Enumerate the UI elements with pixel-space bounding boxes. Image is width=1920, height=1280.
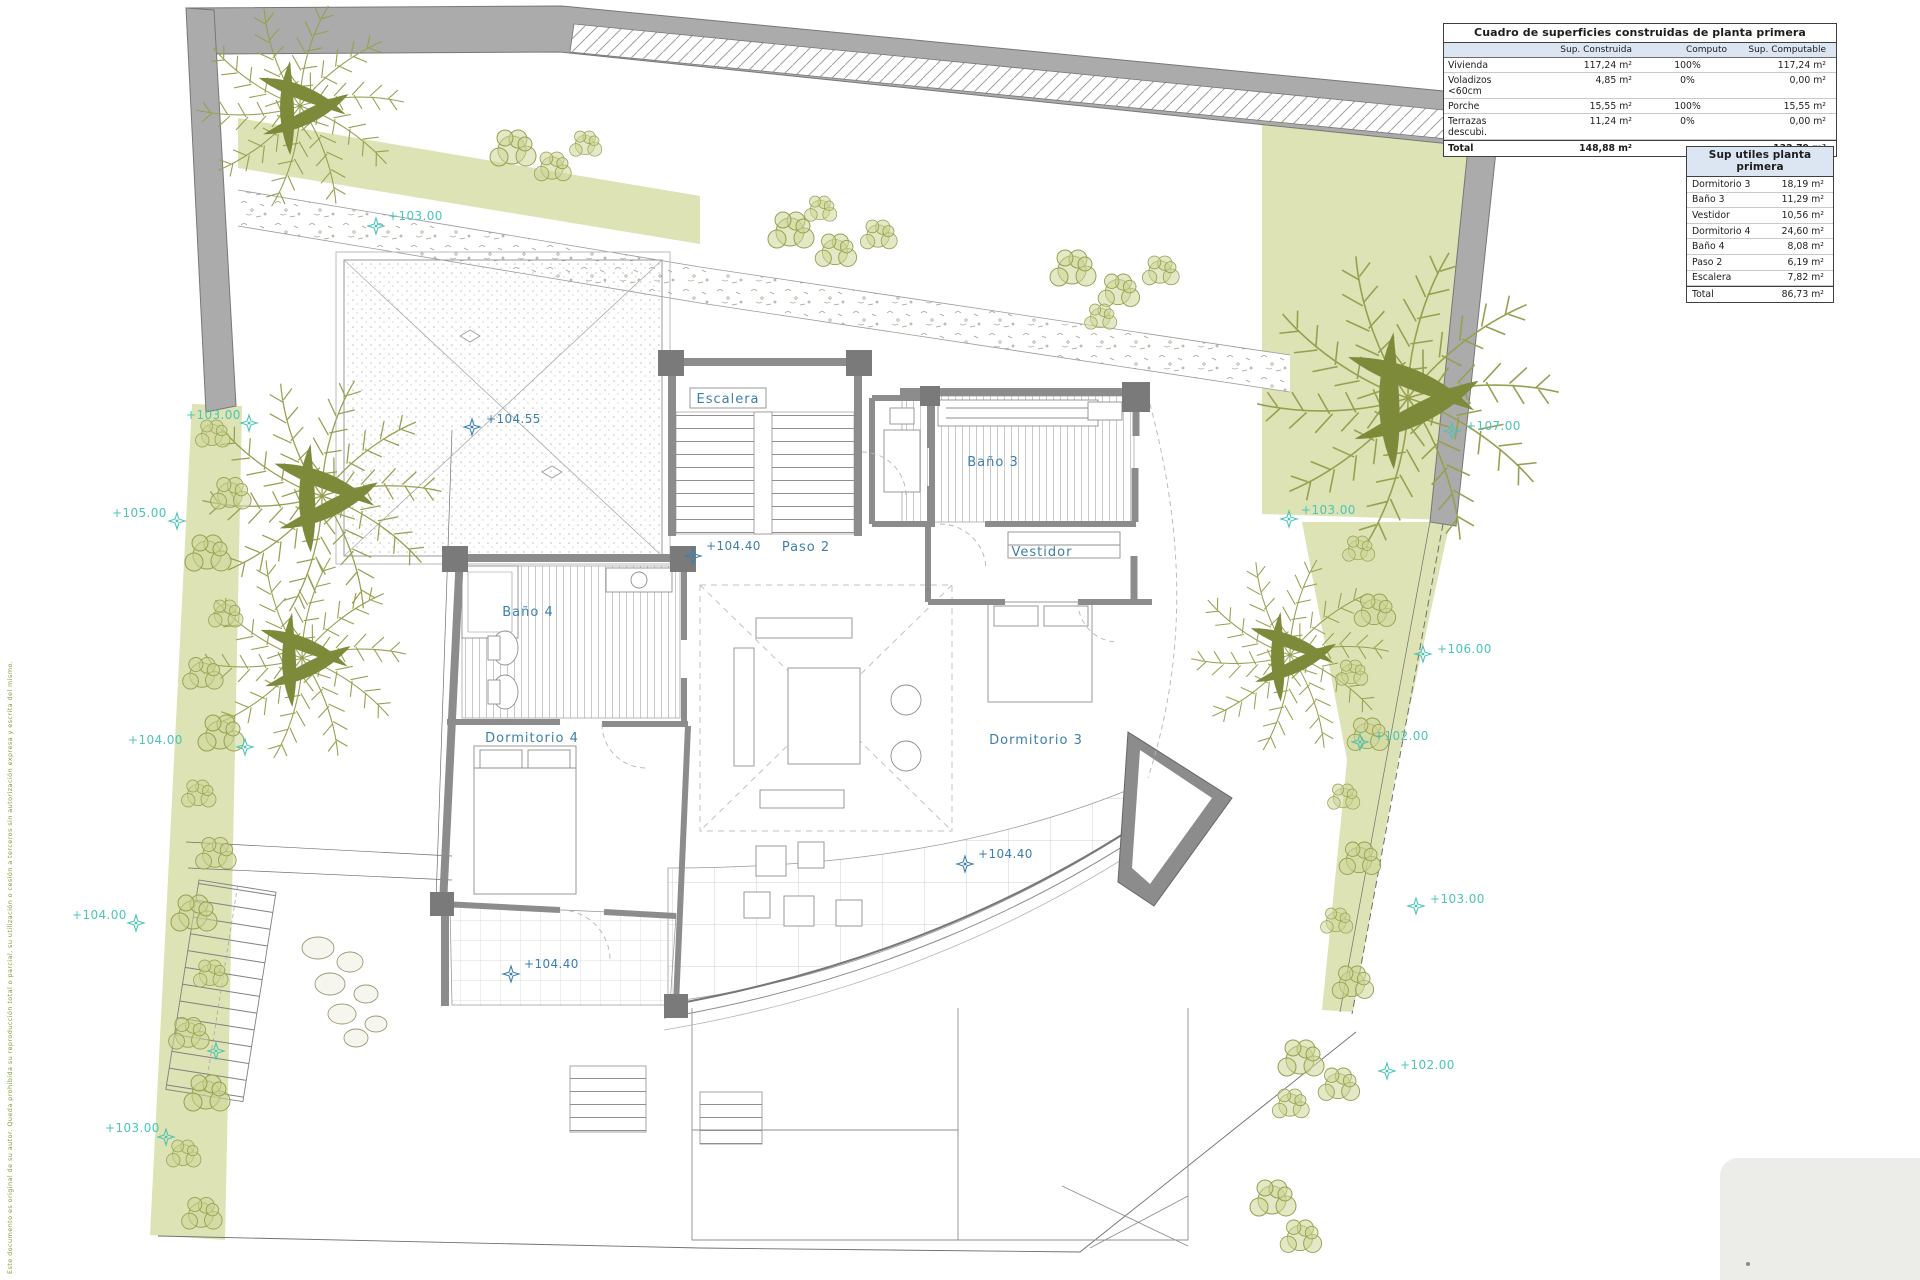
total-label: Total bbox=[1687, 287, 1773, 302]
area-value: 7,82 m² bbox=[1773, 271, 1829, 286]
row-label: Voladizos <60cm bbox=[1444, 73, 1536, 98]
table-row: Baño 311,29 m² bbox=[1687, 193, 1833, 209]
table-row: Porche15,55 m²100%15,55 m² bbox=[1444, 99, 1836, 114]
computo-value: 0% bbox=[1644, 73, 1739, 98]
site-marker-106-00: +106.00 bbox=[1415, 642, 1492, 662]
table-row: Vivienda117,24 m²100%117,24 m² bbox=[1444, 58, 1836, 73]
computo-value: 0% bbox=[1644, 114, 1739, 139]
level-value: +104.40 bbox=[706, 539, 761, 553]
porch bbox=[450, 905, 676, 1132]
level-value: +107.00 bbox=[1466, 419, 1521, 433]
level-value: +106.00 bbox=[1437, 642, 1492, 656]
column-header: Computo bbox=[1644, 43, 1739, 57]
row-label: Baño 3 bbox=[1687, 193, 1773, 208]
useful-areas-table-title: Sup utiles planta primera bbox=[1687, 147, 1833, 177]
table-row: Dormitorio 318,19 m² bbox=[1687, 177, 1833, 193]
survey-star-icon bbox=[169, 513, 185, 529]
column-header bbox=[1444, 43, 1536, 57]
table-row: Baño 48,08 m² bbox=[1687, 239, 1833, 255]
sup-computable-value: 15,55 m² bbox=[1739, 99, 1838, 113]
row-label: Dormitorio 4 bbox=[1687, 224, 1773, 239]
total-value: 86,73 m² bbox=[1773, 287, 1829, 302]
total-label: Total bbox=[1444, 141, 1536, 156]
level-value: +104.40 bbox=[978, 847, 1033, 861]
sup-computable-value: 117,24 m² bbox=[1739, 58, 1838, 72]
table-row: Escalera7,82 m² bbox=[1687, 271, 1833, 287]
computo-value: 100% bbox=[1644, 99, 1739, 113]
level-marker-104-40: +104.40 bbox=[685, 539, 761, 564]
built-areas-table: Cuadro de superficies construidas de pla… bbox=[1443, 23, 1837, 157]
table-row: Paso 26,19 m² bbox=[1687, 255, 1833, 271]
hip-roof bbox=[336, 252, 670, 564]
level-value: +103.00 bbox=[1301, 503, 1356, 517]
room-label-escalera: Escalera bbox=[696, 392, 759, 407]
level-value: +104.00 bbox=[128, 733, 183, 747]
column-header: Sup. Construida bbox=[1536, 43, 1644, 57]
level-value: +103.00 bbox=[186, 408, 241, 422]
room-label-vestidor: Vestidor bbox=[1012, 545, 1073, 560]
survey-star-icon bbox=[1408, 898, 1424, 914]
area-value: 10,56 m² bbox=[1773, 208, 1829, 223]
computo-value: 100% bbox=[1644, 58, 1739, 72]
total-construida: 148,88 m² bbox=[1536, 141, 1644, 156]
level-value: +103.00 bbox=[1430, 892, 1485, 906]
room-label-dormitorio-4: Dormitorio 4 bbox=[485, 731, 579, 746]
level-value: +104.00 bbox=[72, 908, 127, 922]
area-value: 6,19 m² bbox=[1773, 255, 1829, 270]
table-row: Voladizos <60cm4,85 m²0%0,00 m² bbox=[1444, 73, 1836, 99]
survey-star-icon bbox=[1379, 1063, 1395, 1079]
corner-box bbox=[1720, 1158, 1920, 1280]
level-value: +104.40 bbox=[524, 957, 579, 971]
sup-construida-value: 15,55 m² bbox=[1536, 99, 1644, 113]
built-areas-table-header: Sup. ConstruidaComputoSup. Computable bbox=[1444, 43, 1836, 58]
sup-computable-value: 0,00 m² bbox=[1739, 73, 1838, 98]
margin-fine-print: Este documento es original de su autor. … bbox=[6, 794, 14, 1274]
site-marker-102-00: +102.00 bbox=[1379, 1058, 1455, 1079]
rock-cluster bbox=[302, 937, 387, 1047]
row-label: Baño 4 bbox=[1687, 239, 1773, 254]
useful-areas-table-total-row: Total86,73 m² bbox=[1687, 286, 1833, 302]
level-value: +102.00 bbox=[1400, 1058, 1455, 1072]
row-label: Paso 2 bbox=[1687, 255, 1773, 270]
lower-floor-outline bbox=[692, 1008, 1188, 1248]
site-marker-103-00: +103.00 bbox=[1408, 892, 1485, 914]
room-label-paso-2: Paso 2 bbox=[782, 540, 830, 555]
area-value: 18,19 m² bbox=[1773, 177, 1829, 192]
site-marker-104-00: +104.00 bbox=[72, 908, 144, 931]
level-value: +102.00 bbox=[1374, 729, 1429, 743]
room-label-dormitorio-3: Dormitorio 3 bbox=[989, 733, 1083, 748]
area-value: 8,08 m² bbox=[1773, 239, 1829, 254]
row-label: Dormitorio 3 bbox=[1687, 177, 1773, 192]
sup-construida-value: 4,85 m² bbox=[1536, 73, 1644, 98]
survey-star-icon bbox=[241, 415, 257, 431]
level-value: +104.55 bbox=[486, 412, 541, 426]
built-areas-table-title: Cuadro de superficies construidas de pla… bbox=[1444, 24, 1836, 43]
row-label: Porche bbox=[1444, 99, 1536, 113]
room-label-ba-o-4: Baño 4 bbox=[502, 605, 553, 620]
corner-box-mark bbox=[1746, 1262, 1750, 1266]
table-row: Vestidor10,56 m² bbox=[1687, 208, 1833, 224]
survey-star-icon bbox=[128, 915, 144, 931]
row-label: Vestidor bbox=[1687, 208, 1773, 223]
area-value: 24,60 m² bbox=[1773, 224, 1829, 239]
floor-plan-drawing: EscaleraBaño 3Paso 2VestidorBaño 4Dormit… bbox=[0, 0, 1920, 1280]
area-value: 11,29 m² bbox=[1773, 193, 1829, 208]
row-label: Terrazas descubi. bbox=[1444, 114, 1536, 139]
row-label: Vivienda bbox=[1444, 58, 1536, 72]
useful-areas-table: Sup utiles planta primera Dormitorio 318… bbox=[1686, 146, 1834, 303]
column-header: Sup. Computable bbox=[1739, 43, 1838, 57]
sup-construida-value: 117,24 m² bbox=[1536, 58, 1644, 72]
sup-construida-value: 11,24 m² bbox=[1536, 114, 1644, 139]
site-marker-105-00: +105.00 bbox=[112, 506, 185, 529]
corner-wedge-wall bbox=[1118, 732, 1232, 906]
level-value: +103.00 bbox=[105, 1121, 160, 1135]
sup-computable-value: 0,00 m² bbox=[1739, 114, 1838, 139]
level-value: +103.00 bbox=[388, 209, 443, 223]
table-row: Terrazas descubi.11,24 m²0%0,00 m² bbox=[1444, 114, 1836, 140]
level-value: +105.00 bbox=[112, 506, 167, 520]
table-row: Dormitorio 424,60 m² bbox=[1687, 224, 1833, 240]
room-label-ba-o-3: Baño 3 bbox=[967, 455, 1018, 470]
row-label: Escalera bbox=[1687, 271, 1773, 286]
